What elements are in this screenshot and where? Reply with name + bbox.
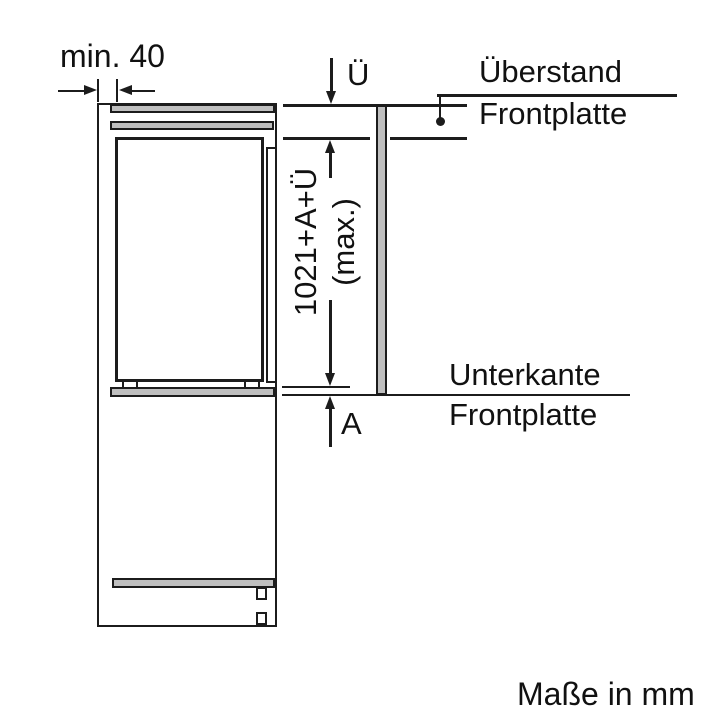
a-arrow-line <box>329 407 332 447</box>
appliance-body <box>115 137 264 382</box>
appliance-door-strip <box>266 147 277 383</box>
overhang-arrow-line <box>330 58 333 92</box>
arrowhead-down-icon <box>326 91 336 104</box>
installation-diagram: min. 40 Ü Überstand Frontplatte 1021+A+Ü… <box>0 0 720 720</box>
overhang-subtitle: Frontplatte <box>479 96 627 132</box>
front-panel-bar <box>376 105 387 395</box>
cabinet-top-panel-upper <box>110 104 275 113</box>
leader-dot-icon <box>436 117 445 126</box>
overhang-title: Überstand <box>479 54 622 90</box>
bottom-edge-subtitle: Frontplatte <box>449 397 597 433</box>
a-dim-label: A <box>341 406 362 442</box>
cabinet-top-panel-lower <box>110 121 274 130</box>
plinth-block-upper <box>256 587 267 600</box>
min40-label: min. 40 <box>60 38 165 74</box>
units-note: Maße in mm <box>517 676 695 712</box>
panel-height-label: 1021+A+Ü (max.) <box>287 137 363 347</box>
arrowhead-right-icon <box>84 85 97 95</box>
appliance-base-panel <box>110 387 275 397</box>
overhang-dim-label: Ü <box>347 57 369 93</box>
min40-tick-left <box>97 79 99 102</box>
bottom-edge-title: Unterkante <box>449 357 601 393</box>
plinth-panel <box>112 578 275 588</box>
plinth-block-lower <box>256 612 267 625</box>
extension-line-appliance-bottom <box>282 386 350 389</box>
min40-arrow-line-left <box>58 90 85 93</box>
panel-height-label-line1: 1021+A+Ü <box>287 137 325 347</box>
arrowhead-down-icon <box>325 373 335 386</box>
extension-line-appliance-top-right <box>390 137 467 140</box>
panel-height-label-line2: (max.) <box>325 137 363 347</box>
arrowhead-left-icon <box>119 85 132 95</box>
min40-arrow-line-right <box>131 90 155 93</box>
